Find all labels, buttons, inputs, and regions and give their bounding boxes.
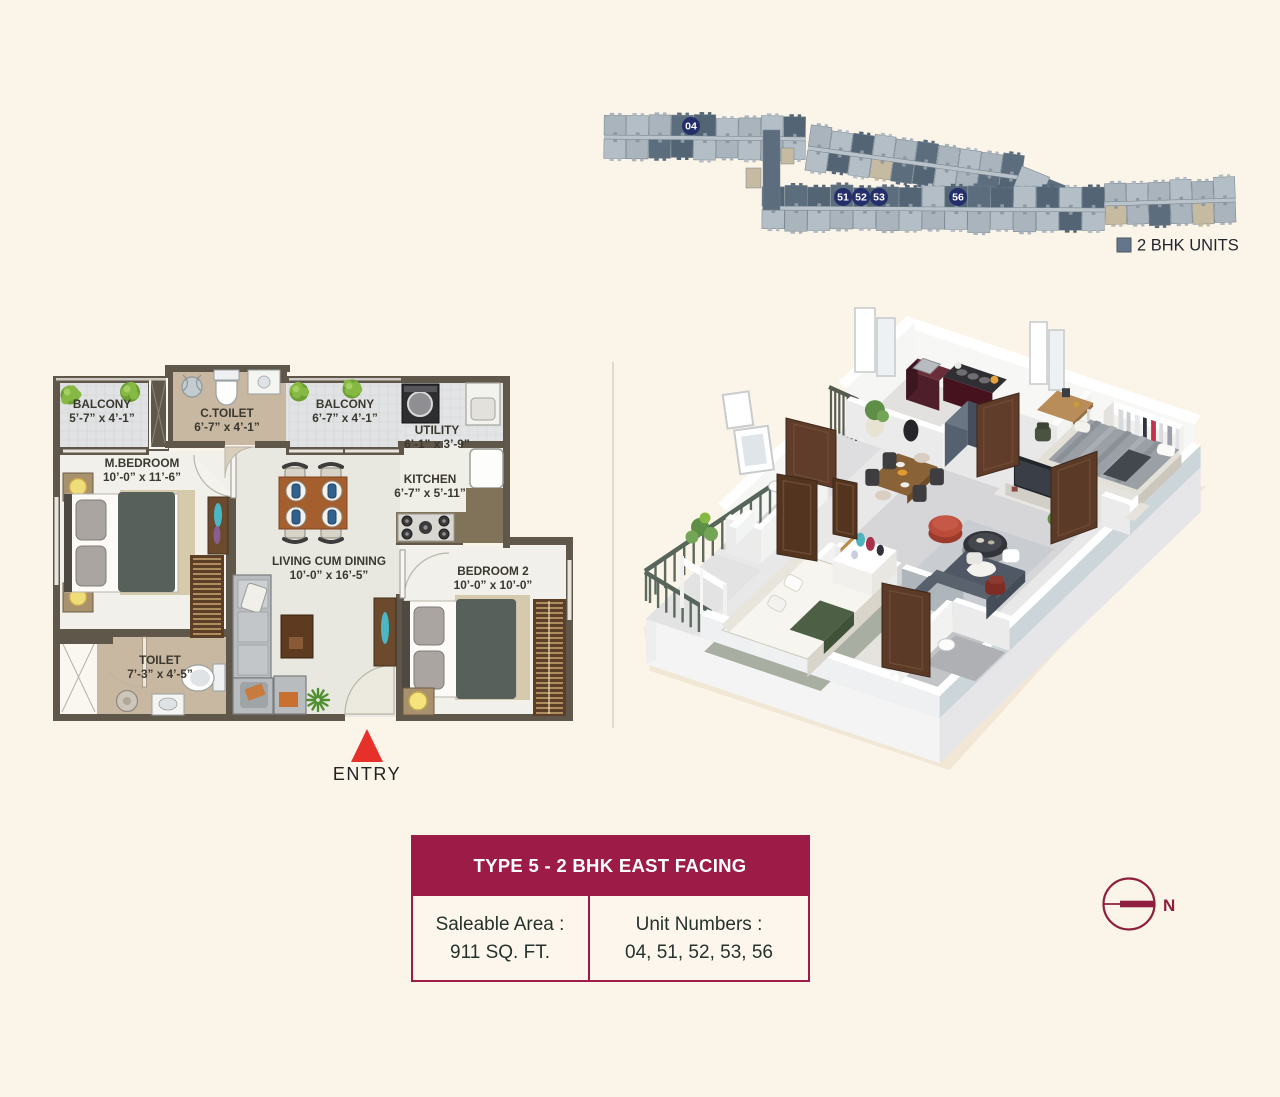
svg-text:BALCONY: BALCONY bbox=[316, 397, 374, 411]
svg-text:UTILITY: UTILITY bbox=[415, 423, 460, 437]
svg-text:911 SQ. FT.: 911 SQ. FT. bbox=[450, 942, 550, 963]
svg-text:10’-0” x 11’-6”: 10’-0” x 11’-6” bbox=[103, 470, 181, 484]
svg-text:C.TOILET: C.TOILET bbox=[200, 406, 254, 420]
svg-text:5’-7” x 4’-1”: 5’-7” x 4’-1” bbox=[69, 411, 135, 425]
svg-text:56: 56 bbox=[952, 192, 964, 204]
svg-text:TYPE 5 - 2 BHK EAST FACING: TYPE 5 - 2 BHK EAST FACING bbox=[473, 855, 746, 876]
svg-text:ENTRY: ENTRY bbox=[333, 764, 401, 784]
svg-text:Saleable Area :: Saleable Area : bbox=[436, 914, 565, 935]
svg-text:M.BEDROOM: M.BEDROOM bbox=[105, 456, 180, 470]
svg-text:7’-3” x 4’-5”: 7’-3” x 4’-5” bbox=[127, 667, 193, 681]
svg-text:6’-1” x 3’-9”: 6’-1” x 3’-9” bbox=[404, 437, 470, 451]
svg-text:52: 52 bbox=[855, 192, 867, 204]
svg-text:BALCONY: BALCONY bbox=[73, 397, 131, 411]
svg-text:6’-7” x 4’-1”: 6’-7” x 4’-1” bbox=[194, 420, 260, 434]
svg-text:10’-0” x 16’-5”: 10’-0” x 16’-5” bbox=[290, 568, 369, 582]
svg-text:53: 53 bbox=[873, 192, 885, 204]
svg-text:N: N bbox=[1163, 896, 1175, 915]
svg-text:04, 51, 52, 53, 56: 04, 51, 52, 53, 56 bbox=[625, 942, 773, 963]
svg-text:KITCHEN: KITCHEN bbox=[404, 472, 456, 486]
svg-text:6’-7” x 5’-11”: 6’-7” x 5’-11” bbox=[394, 486, 466, 500]
svg-text:Unit Numbers :: Unit Numbers : bbox=[636, 914, 763, 935]
svg-text:6’-7” x 4’-1”: 6’-7” x 4’-1” bbox=[312, 411, 378, 425]
svg-text:04: 04 bbox=[685, 121, 697, 133]
svg-text:BEDROOM 2: BEDROOM 2 bbox=[457, 564, 529, 578]
svg-text:51: 51 bbox=[837, 192, 849, 204]
svg-text:2 BHK UNITS: 2 BHK UNITS bbox=[1137, 237, 1239, 255]
svg-text:LIVING CUM DINING: LIVING CUM DINING bbox=[272, 554, 386, 568]
svg-text:TOILET: TOILET bbox=[139, 653, 182, 667]
svg-text:10’-0” x 10’-0”: 10’-0” x 10’-0” bbox=[454, 578, 533, 592]
